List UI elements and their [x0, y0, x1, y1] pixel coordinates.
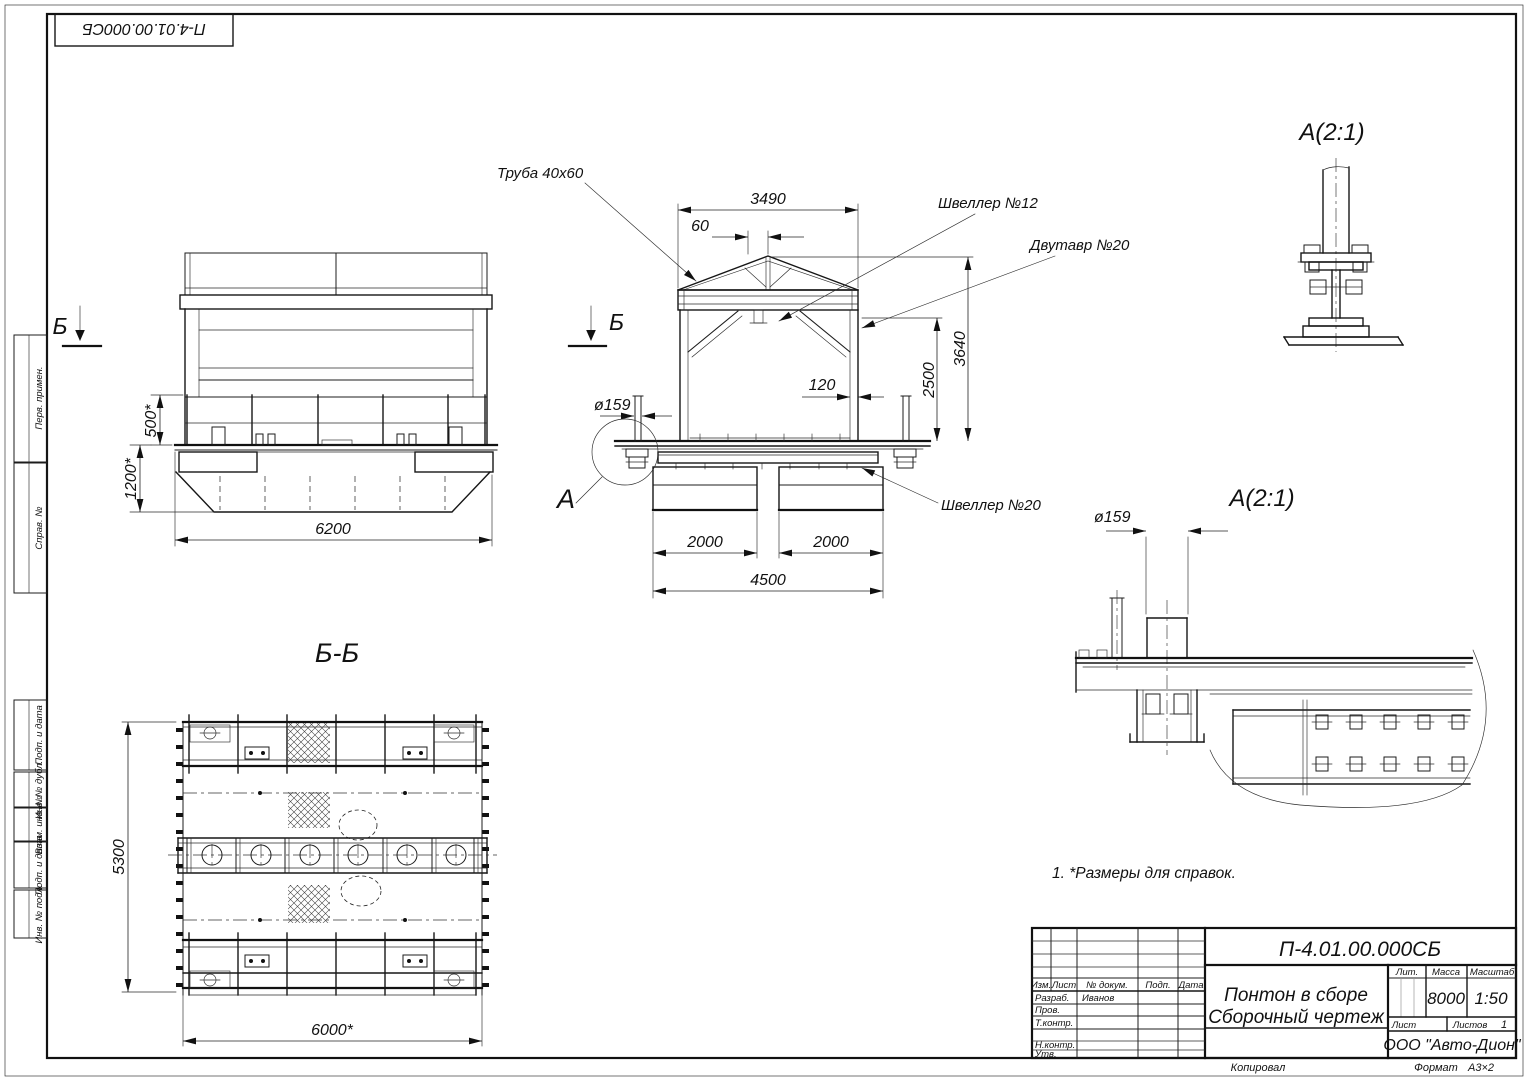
- sheets-label: Листов: [1452, 1020, 1488, 1031]
- section-mark-b-side: Б: [609, 309, 624, 335]
- frame-column-cell: Подп. и дата: [14, 700, 47, 770]
- stamp-doc-number: П-4.01.00.000СБ: [82, 20, 205, 37]
- sheet-label: Лист: [1391, 1020, 1417, 1031]
- section-view-bb: Б-Б: [111, 638, 497, 1046]
- titleblock-doc-number: П-4.01.00.000СБ: [1279, 938, 1441, 961]
- row-checked: Пров.: [1035, 1005, 1060, 1016]
- dim-hull-height: 1200*: [123, 457, 140, 500]
- row-developed: Разраб.: [1035, 993, 1069, 1004]
- dim-plan-length: 6000*: [311, 1022, 354, 1039]
- front-view: 500* 1200* 6200 Б: [53, 253, 497, 546]
- dim-pontoon-right: 2000: [812, 534, 849, 551]
- detail-a-mid: А(2:1) ø159: [1076, 485, 1486, 808]
- dim-rail-height: 500*: [143, 404, 160, 438]
- section-mark-b-front: Б: [53, 313, 68, 339]
- dim-base-width: 4500: [750, 572, 786, 589]
- mass-label: Масса: [1432, 967, 1460, 978]
- titleblock-title-line2: Сборочный чертеж: [1208, 1007, 1385, 1028]
- frame-column-cell: Инв. № подл.: [14, 885, 47, 944]
- scale-label: Масштаб: [1470, 967, 1515, 978]
- frame-column-cell: Перв. примен.: [14, 335, 47, 462]
- notes: 1. *Размеры для справок.: [1052, 865, 1236, 882]
- row-tcontrol: Т.контр.: [1035, 1018, 1073, 1029]
- bottom-band-posts: [189, 933, 476, 995]
- format-value: А3×2: [1467, 1062, 1494, 1074]
- label-channel-12: Швеллер №12: [938, 195, 1039, 212]
- frame-column-label: Инв. № подл.: [34, 885, 45, 944]
- side-view: 2000 2000 4500 А ø159 3490 60 120 2500 3…: [497, 165, 1130, 598]
- hatch-area: [288, 885, 330, 923]
- detail-top-title: А(2:1): [1297, 119, 1364, 146]
- dim-pontoon-left: 2000: [686, 534, 723, 551]
- dim-pipe-dia: ø159: [594, 397, 631, 414]
- frame-column-label: Подп. и дата: [34, 705, 45, 764]
- channel-bolts-bottom: [1312, 757, 1468, 771]
- dim-plan-width: 5300: [111, 839, 128, 875]
- col-doc: № докум.: [1086, 980, 1128, 991]
- frame-columns: Перв. примен. Справ. № Подп. и дата Инв.…: [14, 335, 47, 943]
- drawing-sheet: П-4.01.00.000СБ Перв. примен. Справ. № П…: [0, 0, 1528, 1081]
- manhole-dashed: [339, 810, 377, 840]
- dim-column-height: 2500: [921, 362, 938, 399]
- section-title: Б-Б: [315, 638, 359, 668]
- col-date: Дата: [1177, 980, 1203, 991]
- row-approved: Утв.: [1034, 1049, 1057, 1060]
- frame-column-label: Перв. примен.: [34, 366, 45, 429]
- dim-apex-offset: 60: [691, 218, 709, 235]
- label-pipe-40x60: Труба 40х60: [497, 165, 584, 182]
- detail-dim-pipe-dia: ø159: [1094, 509, 1131, 526]
- dim-length: 6200: [315, 521, 351, 538]
- channel-bolts-top: [1312, 715, 1468, 729]
- company-name: ООО "Авто-Дион": [1383, 1037, 1522, 1054]
- dim-column: 120: [809, 377, 836, 394]
- detail-mark-a: А: [555, 484, 575, 514]
- dim-total-height: 3640: [952, 331, 969, 367]
- title-block: П-4.01.00.000СБ Понтон в сборе Сборочный…: [1031, 928, 1522, 1060]
- lit-label: Лит.: [1395, 967, 1418, 978]
- frame-column-cell: Справ. №: [14, 463, 47, 593]
- developer-name: Иванов: [1082, 993, 1114, 1004]
- sheets-value: 1: [1501, 1019, 1507, 1031]
- mass-value: 8000: [1427, 989, 1465, 1008]
- footer-labels: Копировал Формат А3×2: [1231, 1062, 1494, 1074]
- hatch-area: [288, 723, 330, 763]
- titleblock-title-line1: Понтон в сборе: [1224, 985, 1368, 1006]
- detail-a-top: А(2:1): [1284, 119, 1403, 352]
- frame-column-label: Справ. №: [34, 506, 45, 549]
- col-izm: Изм.: [1031, 980, 1051, 991]
- manhole-dashed: [341, 876, 381, 906]
- col-sign: Подп.: [1145, 980, 1170, 991]
- dim-top-width: 3490: [750, 191, 786, 208]
- label-channel-20: Швеллер №20: [941, 497, 1042, 514]
- drawing-canvas: П-4.01.00.000СБ Перв. примен. Справ. № П…: [0, 0, 1528, 1081]
- note-reference-dims: 1. *Размеры для справок.: [1052, 865, 1236, 882]
- scale-value: 1:50: [1474, 989, 1508, 1008]
- label-ibeam-20: Двутавр №20: [1028, 237, 1130, 254]
- drawing-frame: [5, 5, 1523, 1076]
- detail-mid-title: А(2:1): [1227, 485, 1294, 512]
- hatch-area: [288, 792, 330, 828]
- format-label: Формат: [1414, 1062, 1458, 1074]
- top-left-stamp: П-4.01.00.000СБ: [55, 14, 233, 46]
- copied-label: Копировал: [1231, 1062, 1286, 1074]
- top-band-posts: [189, 715, 476, 773]
- col-list: Лист: [1051, 980, 1077, 991]
